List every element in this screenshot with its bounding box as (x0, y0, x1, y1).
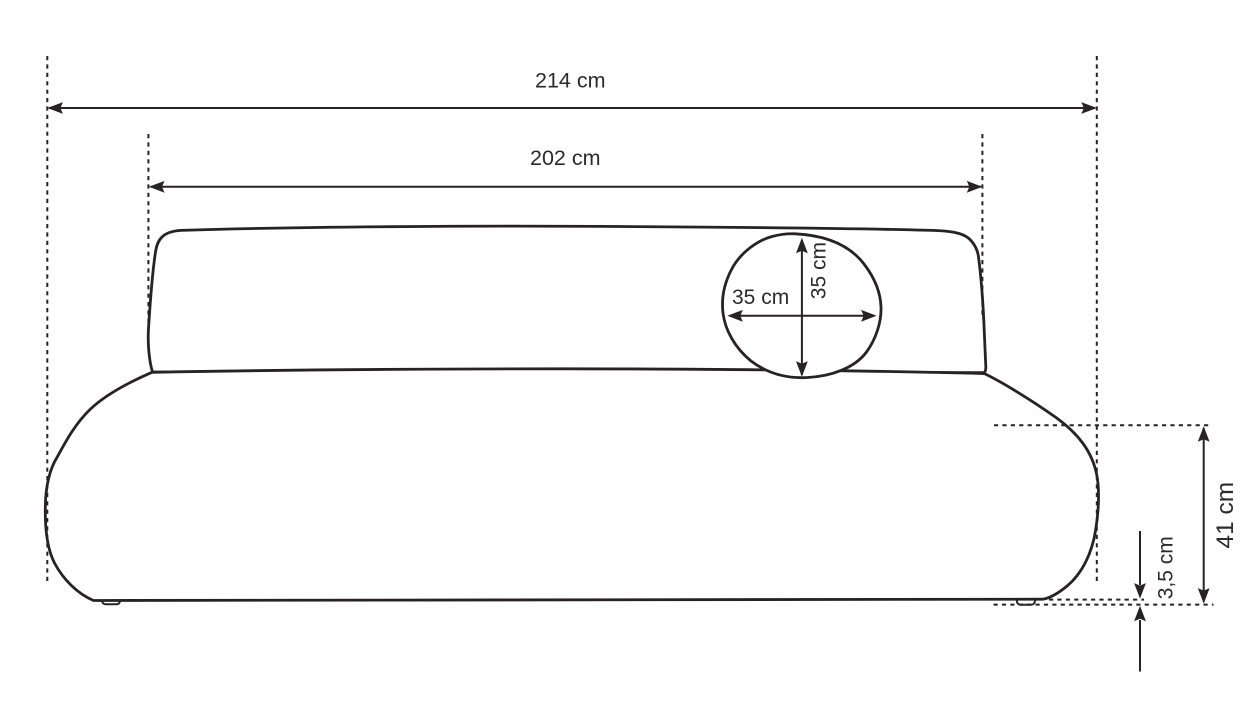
svg-text:35 cm: 35 cm (808, 242, 831, 299)
svg-text:202 cm: 202 cm (530, 146, 601, 170)
svg-text:35 cm: 35 cm (732, 286, 789, 309)
svg-text:41 cm: 41 cm (1212, 482, 1239, 549)
svg-text:214 cm: 214 cm (535, 68, 606, 92)
svg-text:3,5 cm: 3,5 cm (1155, 536, 1178, 599)
